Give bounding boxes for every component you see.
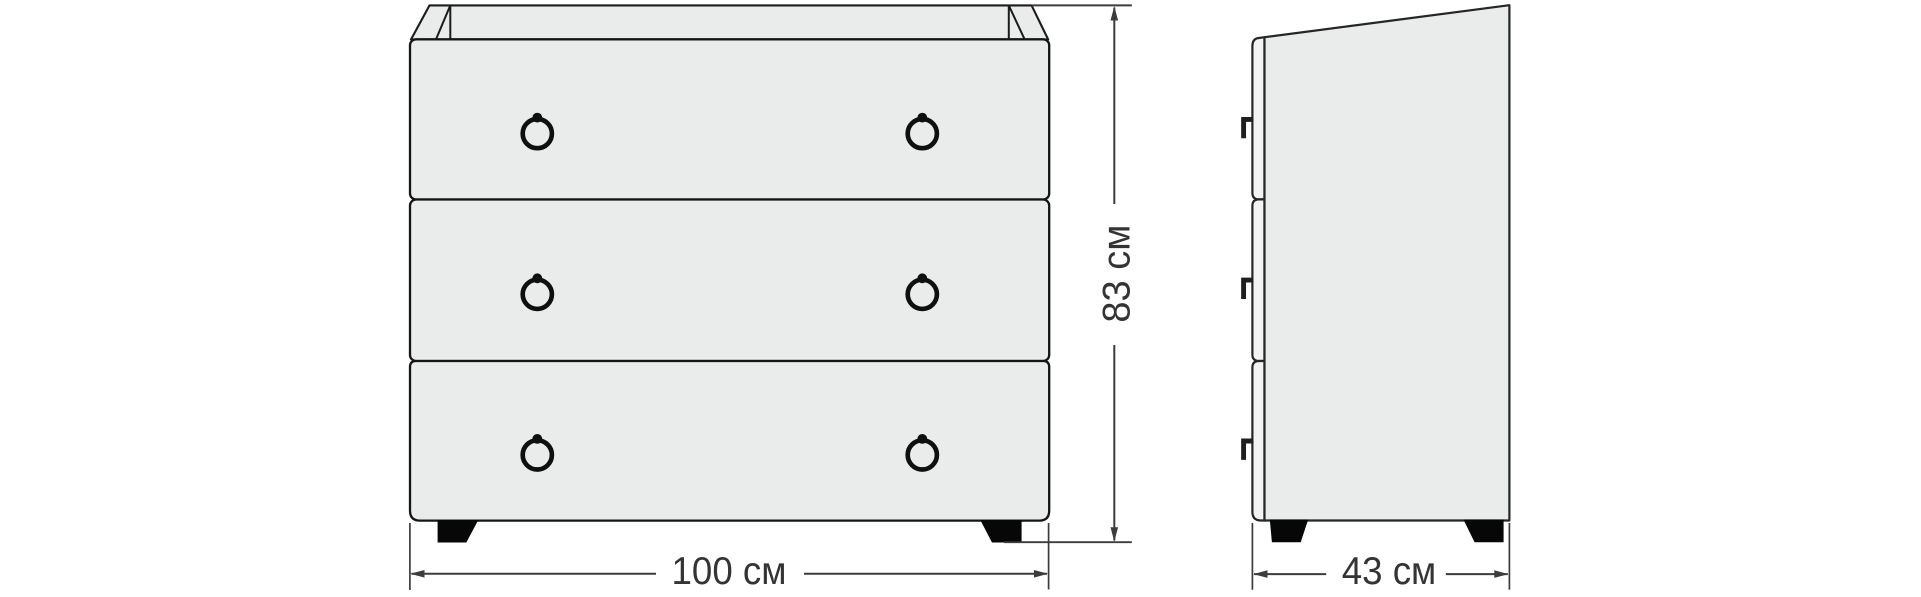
svg-text:83 см: 83 см — [1096, 225, 1139, 323]
svg-text:43 см: 43 см — [1342, 550, 1437, 593]
svg-text:100 см: 100 см — [672, 550, 787, 593]
